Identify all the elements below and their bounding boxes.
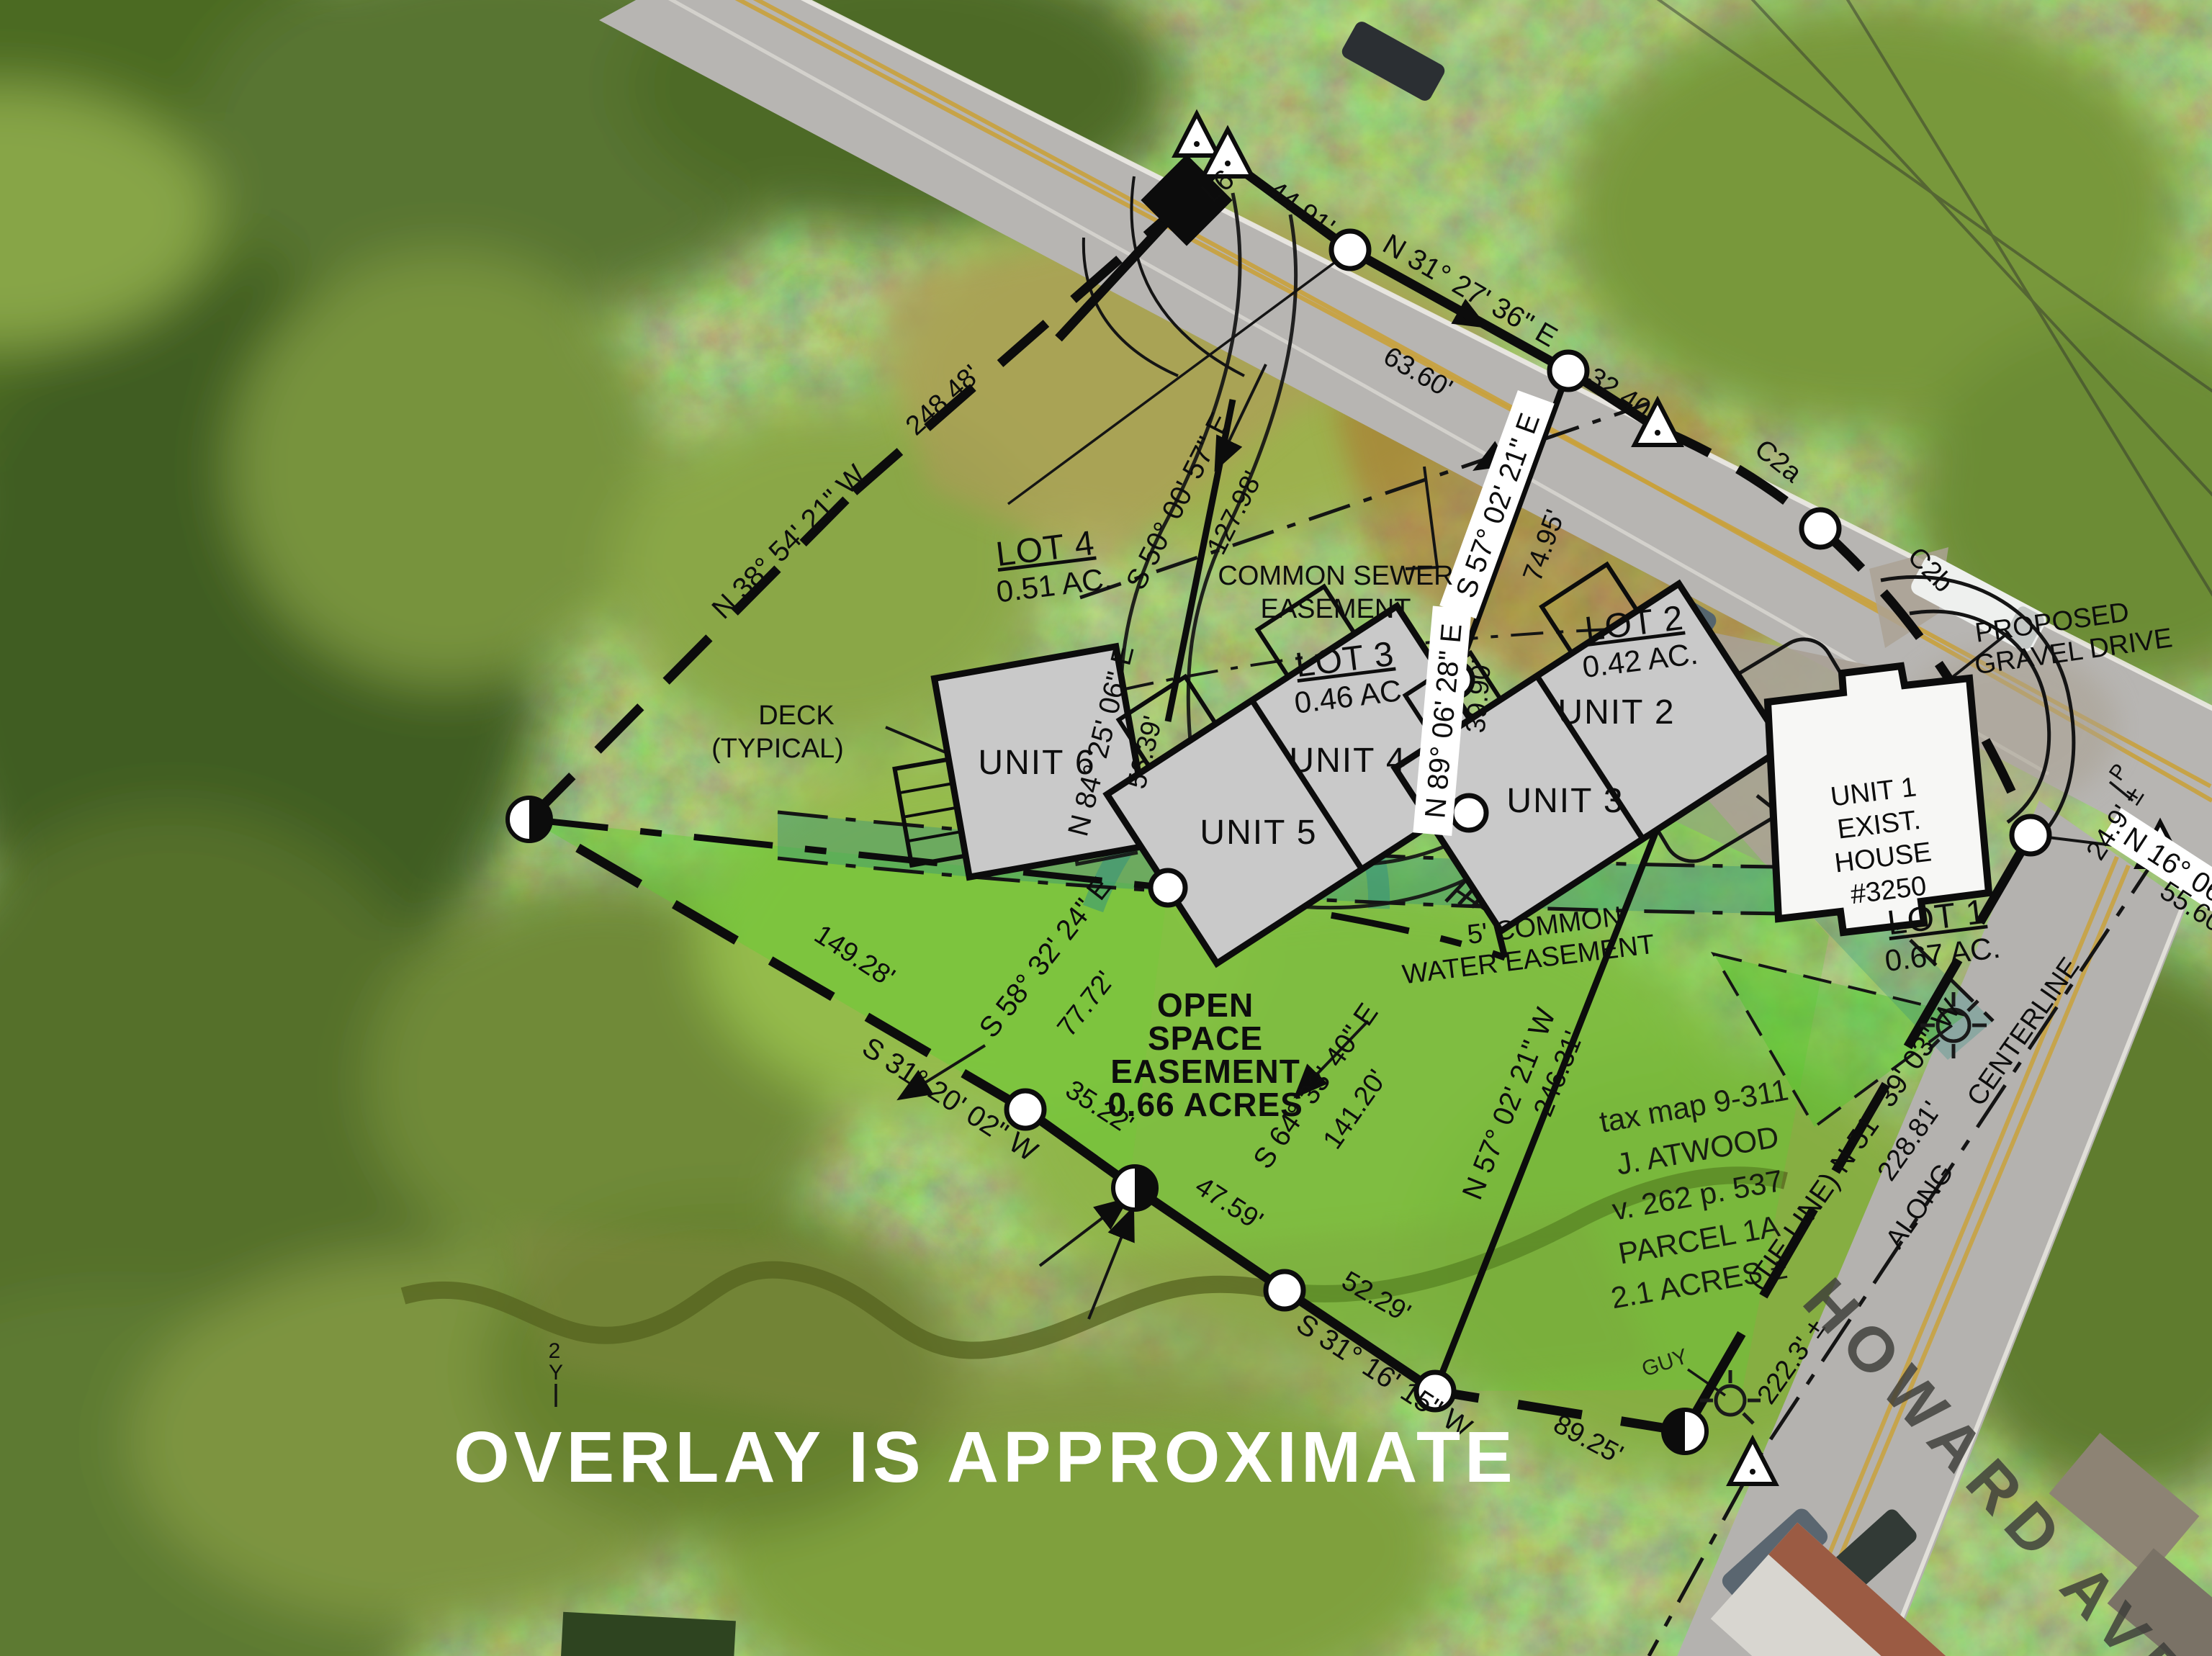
svg-text:EASEMENT: EASEMENT [1110,1053,1300,1090]
unit4-label: UNIT 4 [1289,742,1406,780]
deck-label-2: (TYPICAL) [711,734,844,764]
unit5-label: UNIT 5 [1200,814,1317,852]
watermark: OVERLAY IS APPROXIMATE [454,1417,1517,1498]
dim-39-90: 39.90' [1461,658,1498,734]
tag-y: Y [549,1361,563,1385]
svg-text:0.66 ACRES: 0.66 ACRES [1107,1086,1303,1123]
svg-text:OPEN: OPEN [1157,986,1254,1024]
survey-map-svg: 44.91' N 31° 27' 36" E 63.60' 32.40' C2a… [0,0,2212,1656]
unit2-label: UNIT 2 [1557,693,1675,732]
svg-text:SPACE: SPACE [1148,1020,1263,1057]
unit6-label: UNIT 6 [978,744,1095,782]
tag-2: 2 [549,1339,561,1363]
sewer-label-1: COMMON SEWER [1218,561,1453,591]
adjoiner-label: tax map 9-311 J. ATWOOD v. 262 p. 537 PA… [1597,1073,1791,1315]
lot2-label: LOT 2 0.42 AC. [1575,598,1699,684]
deck-label-1: DECK [758,701,835,731]
sewer-label-2: EASEMENT [1260,594,1411,624]
unit3-label: UNIT 3 [1506,782,1624,820]
site-plan-overlay: 44.91' N 31° 27' 36" E 63.60' 32.40' C2a… [0,0,2212,1656]
